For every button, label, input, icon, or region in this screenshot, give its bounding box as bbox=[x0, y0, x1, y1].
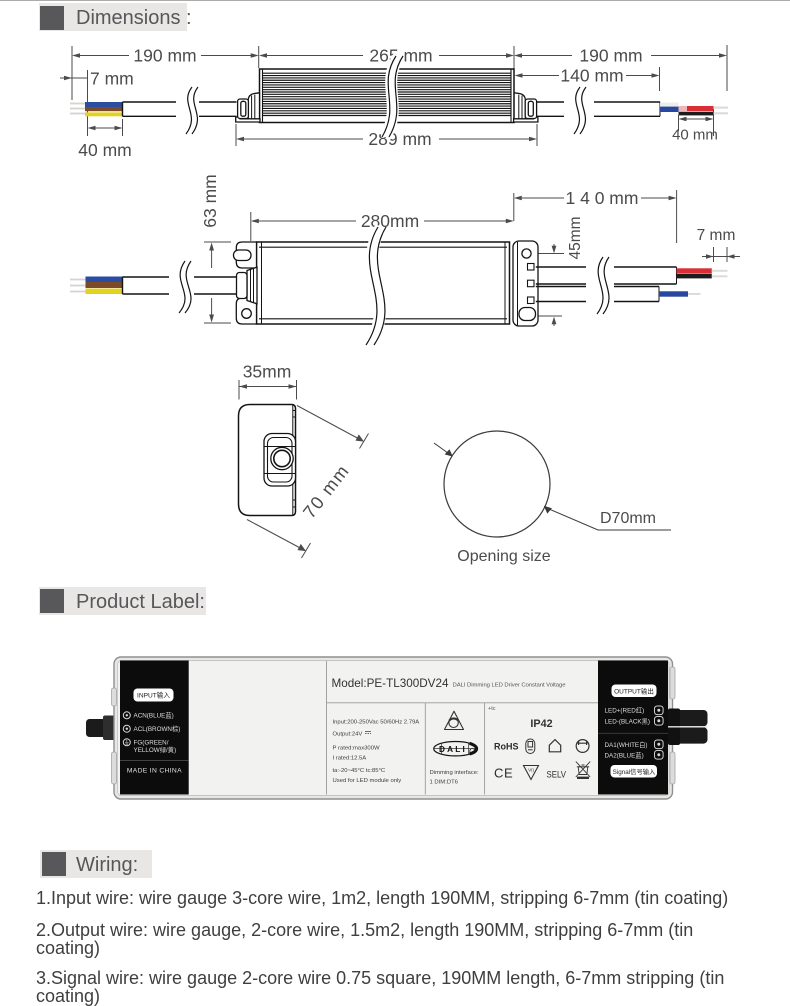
svg-text:P rated:max300W: P rated:max300W bbox=[333, 746, 380, 752]
svg-text:ACL(BROWN棕): ACL(BROWN棕) bbox=[134, 724, 181, 733]
svg-text:RoHS: RoHS bbox=[494, 741, 519, 751]
svg-text:DA2(BLUE蓝): DA2(BLUE蓝) bbox=[605, 750, 644, 759]
svg-text:MADE IN CHINA: MADE IN CHINA bbox=[127, 767, 182, 774]
svg-text:63 mm: 63 mm bbox=[200, 174, 220, 227]
svg-text:SELV: SELV bbox=[547, 770, 567, 781]
svg-text:280mm: 280mm bbox=[361, 211, 419, 231]
svg-text:ACN(BLUE蓝): ACN(BLUE蓝) bbox=[134, 711, 174, 720]
svg-text:Input:200-250Vac 50/60Hz 2.79: Input:200-250Vac 50/60Hz 2.79A bbox=[333, 720, 420, 726]
svg-text:Opening size: Opening size bbox=[457, 548, 550, 565]
svg-text:190 mm: 190 mm bbox=[579, 46, 642, 66]
svg-text:Model:PE-TL300DV24: Model:PE-TL300DV24 bbox=[332, 677, 449, 690]
svg-text:7 mm: 7 mm bbox=[90, 69, 134, 89]
svg-text:7 mm: 7 mm bbox=[697, 227, 736, 244]
svg-text:CE: CE bbox=[494, 766, 513, 781]
svg-text:+tc: +tc bbox=[488, 706, 496, 712]
svg-text:1 4 0 mm: 1 4 0 mm bbox=[566, 188, 639, 208]
svg-text:FG(GREEN/: FG(GREEN/ bbox=[134, 740, 169, 747]
svg-text:35mm: 35mm bbox=[243, 362, 292, 382]
svg-text:LED-(BLACK黑): LED-(BLACK黑) bbox=[605, 717, 651, 725]
svg-text:INPUT输入: INPUT输入 bbox=[137, 691, 170, 700]
svg-text:70 mm: 70 mm bbox=[299, 461, 353, 523]
svg-text:D70mm: D70mm bbox=[600, 510, 656, 527]
svg-text:DA1(WHITE白): DA1(WHITE白) bbox=[605, 740, 648, 749]
svg-text:ta:-20~45°C tc:85°C: ta:-20~45°C tc:85°C bbox=[333, 768, 386, 774]
svg-text:140 mm: 140 mm bbox=[560, 66, 623, 86]
svg-text:I rated:12.5A: I rated:12.5A bbox=[333, 756, 367, 762]
svg-text:Signal信号输入: Signal信号输入 bbox=[613, 767, 656, 776]
svg-text:Output:24V: Output:24V bbox=[333, 732, 363, 738]
svg-text:Dimming interface:: Dimming interface: bbox=[430, 770, 479, 776]
svg-text:40 mm: 40 mm bbox=[672, 127, 718, 144]
svg-text:40 mm: 40 mm bbox=[78, 140, 131, 160]
svg-text:45mm: 45mm bbox=[567, 216, 584, 259]
svg-text:289 mm: 289 mm bbox=[368, 129, 431, 149]
svg-text:LED+(RED红): LED+(RED红) bbox=[605, 706, 645, 715]
svg-text:OUTPUT输出: OUTPUT输出 bbox=[614, 687, 654, 696]
svg-text:190 mm: 190 mm bbox=[133, 46, 196, 66]
svg-text:IP42: IP42 bbox=[530, 718, 552, 730]
svg-text:DALI Dimming LED Driver Consta: DALI Dimming LED Driver Constant Voltage bbox=[453, 682, 567, 688]
svg-text:VI): VI) bbox=[528, 768, 534, 773]
svg-text:DALI: DALI bbox=[439, 745, 467, 754]
svg-text:1 DIM:DT6: 1 DIM:DT6 bbox=[430, 780, 459, 786]
svg-text:YELLOW绿/黄): YELLOW绿/黄) bbox=[134, 745, 177, 754]
svg-text:Used for LED module only: Used for LED module only bbox=[333, 778, 402, 784]
